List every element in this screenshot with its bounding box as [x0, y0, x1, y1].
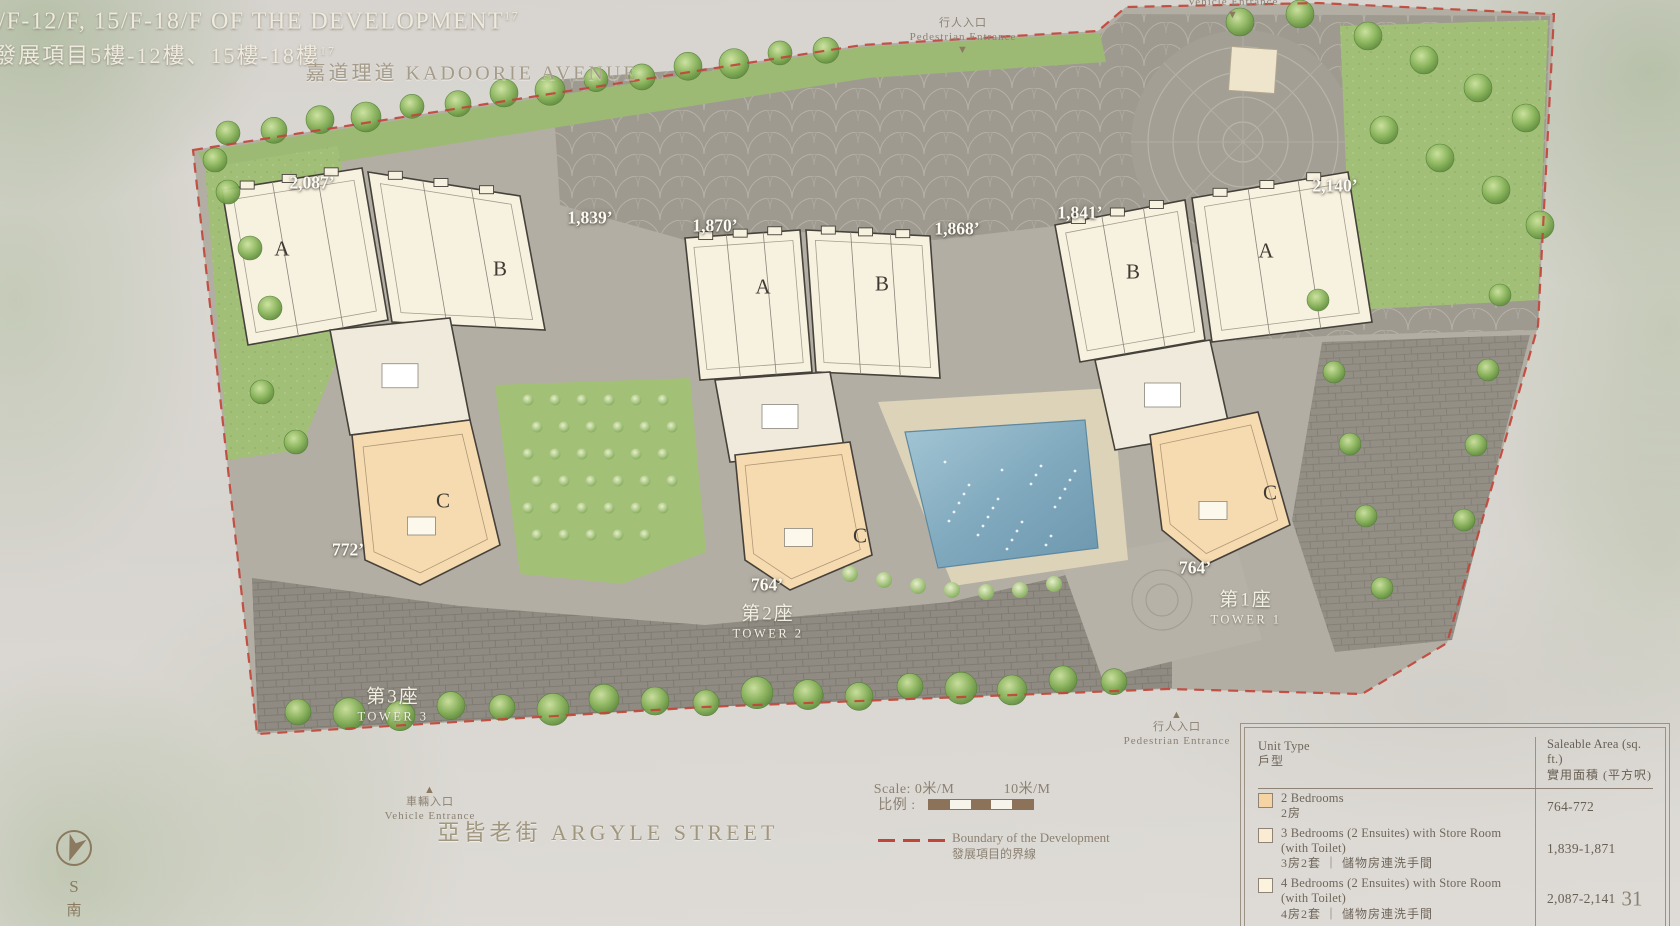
unit-letter-t2b: B — [875, 272, 889, 297]
area-label-t3b: 1,839’ — [567, 208, 612, 229]
area-label-t1c: 764’ — [1179, 558, 1211, 579]
area-label-t2c: 764’ — [751, 575, 783, 596]
compass-s-label: S — [47, 877, 101, 897]
scale-label-ten: 10米/M — [1004, 778, 1051, 798]
arrow-up-icon: ▲ — [1124, 710, 1231, 721]
vehicle-entrance-bottom: ▲ 車輛入口 Vehicle Entrance — [385, 785, 476, 824]
pavilion — [1229, 46, 1278, 93]
unit-letter-t3c: C — [436, 489, 450, 514]
unit-letter-t3a: A — [274, 237, 289, 262]
unit-letter-t1c: C — [1263, 481, 1277, 506]
unit-letter-t2a: A — [755, 275, 770, 300]
pedestrian-entrance-top: 行人入口 Pedestrian Entrance ▼ — [910, 17, 1017, 56]
legend-row-4bed: 4 Bedrooms (2 Ensuites) with Store Room … — [1258, 874, 1653, 924]
unit-letter-t1b: B — [1126, 260, 1140, 285]
arrow-down-icon: ▼ — [1188, 9, 1279, 20]
compass-icon — [47, 826, 101, 870]
area-label-t2a: 1,870’ — [692, 216, 737, 237]
area-label-t1b: 1,841’ — [1057, 203, 1102, 224]
boundary-legend-text: Boundary of the Development 發展項目的界線 — [952, 830, 1110, 862]
tower-2-label: 第2座TOWER 2 — [732, 599, 803, 642]
pedestrian-entrance-bottom: ▲ 行人入口 Pedestrian Entrance — [1124, 710, 1231, 749]
scale-bar — [928, 799, 1034, 810]
vehicle-entrance-top: 車輛入口 Vehicle Entrance ▼ — [1188, 0, 1279, 20]
tower-1-label: 第1座TOWER 1 — [1210, 585, 1281, 628]
street-kadoorie-avenue: 嘉道理道 KADOORIE AVENUE — [306, 57, 639, 86]
compass-south: S 南 — [47, 826, 101, 920]
site-plan-page: 5/F-12/F, 15/F-18/F OF THE DEVELOPMENT17… — [0, 0, 1680, 926]
legend-row-3bed: 3 Bedrooms (2 Ensuites) with Store Room … — [1258, 824, 1653, 874]
boundary-legend-dashes — [878, 839, 945, 842]
tower-3-label: 第3座TOWER 3 — [357, 682, 428, 725]
swatch-2bed — [1258, 793, 1273, 808]
right-walk — [1292, 335, 1530, 652]
unit-letter-t1a: A — [1258, 239, 1273, 264]
area-label-t3a: 2,087’ — [289, 173, 334, 194]
street-argyle-street: 亞皆老街 ARGYLE STREET — [438, 815, 779, 847]
area-label-t2b: 1,868’ — [934, 219, 979, 240]
area-label-t1a: 2,140’ — [1312, 176, 1357, 197]
arrow-up-icon: ▲ — [385, 785, 476, 796]
swatch-3bed — [1258, 828, 1273, 843]
tower-buildings — [222, 168, 1372, 590]
page-title-zh: 發展項目5樓-12樓、15樓-18樓17 — [0, 38, 336, 70]
compass-south-label: 南 — [47, 899, 101, 920]
unit-letter-t3b: B — [493, 257, 507, 282]
legend-header-row: Unit Type 戶型 Saleable Area (sq. ft.) 實用面… — [1258, 737, 1653, 789]
area-label-t3c: 772’ — [332, 540, 364, 561]
legend-row-2bed: 2 Bedrooms 2房 764-772 — [1258, 789, 1653, 824]
arrow-down-icon: ▼ — [910, 44, 1017, 55]
page-title-en: 5/F-12/F, 15/F-18/F OF THE DEVELOPMENT17 — [0, 9, 519, 36]
unit-type-legend-table: Unit Type 戶型 Saleable Area (sq. ft.) 實用面… — [1240, 723, 1670, 926]
page-number: 31 — [1622, 887, 1643, 912]
swatch-4bed — [1258, 878, 1273, 893]
unit-letter-t2c: C — [853, 524, 867, 549]
swimming-pool — [905, 420, 1098, 568]
scale-label-zh: 比例 : — [878, 794, 915, 814]
